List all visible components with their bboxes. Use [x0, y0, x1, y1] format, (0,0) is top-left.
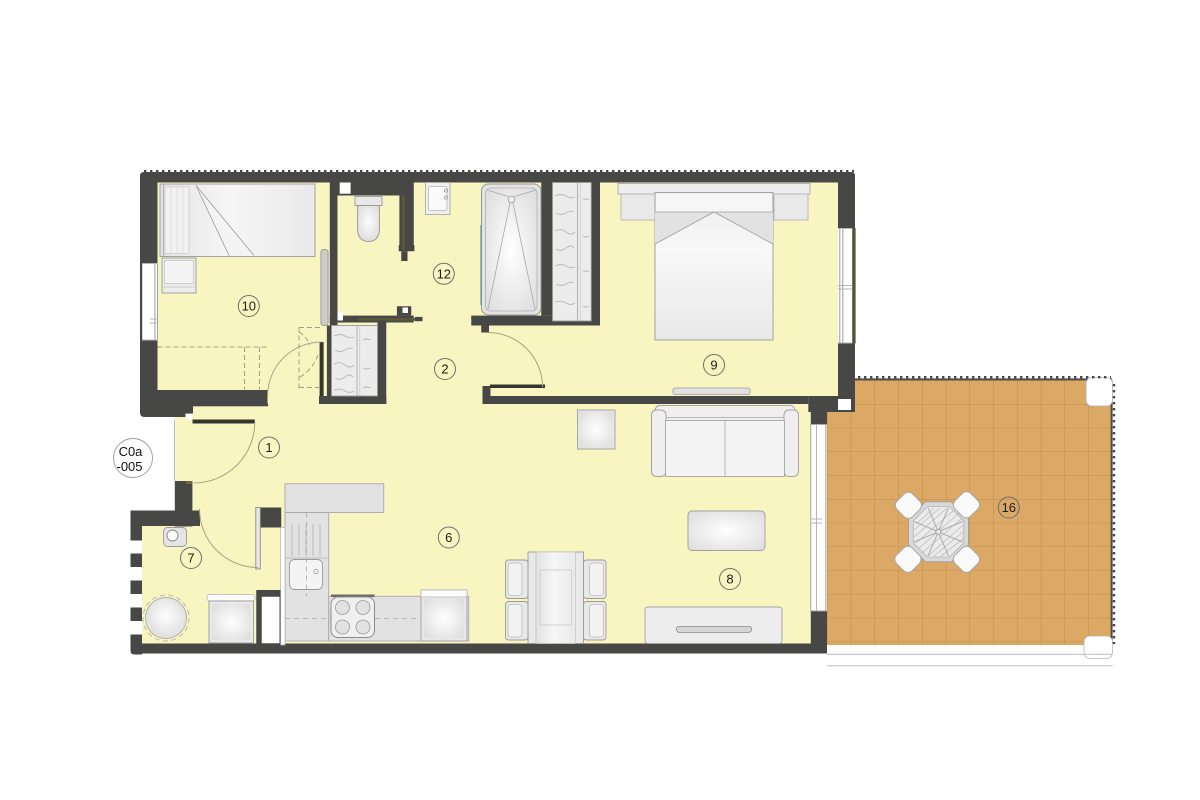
svg-text:9: 9	[710, 358, 717, 373]
svg-text:1: 1	[265, 440, 272, 455]
svg-text:12: 12	[437, 266, 451, 281]
svg-text:16: 16	[1002, 500, 1016, 515]
svg-text:-005: -005	[116, 459, 142, 474]
svg-text:C0a: C0a	[119, 444, 144, 459]
svg-text:8: 8	[726, 572, 733, 587]
svg-text:2: 2	[441, 362, 448, 377]
svg-text:10: 10	[242, 299, 256, 314]
svg-text:7: 7	[187, 551, 194, 566]
svg-text:6: 6	[445, 530, 452, 545]
